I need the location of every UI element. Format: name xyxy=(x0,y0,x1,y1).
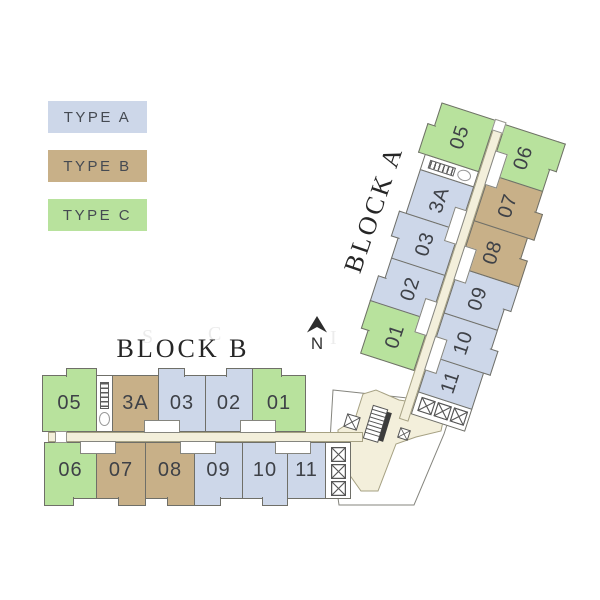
unit-label: 08 xyxy=(479,238,508,268)
door-icon xyxy=(99,412,110,426)
legend-swatch-type-a: TYPE A xyxy=(48,101,147,133)
legend-label-type-a: TYPE A xyxy=(64,109,132,126)
elevator-icon xyxy=(331,447,346,462)
north-indicator: N xyxy=(303,316,331,354)
unit-step xyxy=(418,123,436,155)
unit-label: 02 xyxy=(217,392,241,415)
unit-step xyxy=(548,141,566,172)
unit-step xyxy=(66,368,97,377)
legend-label-type-b: TYPE B xyxy=(63,158,131,175)
unit-step xyxy=(118,497,146,506)
unit-step xyxy=(226,368,253,377)
stair-core xyxy=(96,375,113,432)
unit-label: 11 xyxy=(295,459,318,482)
unit-label: 03 xyxy=(411,229,440,259)
block-a-plan: 0102033A05111009080706 xyxy=(345,97,562,440)
unit-step xyxy=(511,258,528,287)
unit-label: 07 xyxy=(109,459,133,482)
unit-step xyxy=(262,497,288,506)
unit-label: 10 xyxy=(449,328,478,358)
stairs-icon xyxy=(100,382,109,409)
block-b-plan: 053A030201060708091011 xyxy=(43,375,363,499)
unit-label: 10 xyxy=(253,459,277,482)
unit-step xyxy=(252,368,282,377)
unit-label: 06 xyxy=(509,143,538,173)
entry-notch xyxy=(144,420,180,433)
unit-label: 05 xyxy=(446,122,475,152)
unit-label: 11 xyxy=(437,368,466,397)
entry-notch xyxy=(180,441,216,454)
elevator-bank xyxy=(325,442,351,499)
unit-step xyxy=(526,212,543,241)
north-label: N xyxy=(303,334,331,354)
unit-step xyxy=(482,349,498,376)
unit-label: 02 xyxy=(396,274,425,304)
unit-label: 03 xyxy=(170,392,194,415)
unit-label: 01 xyxy=(267,392,291,415)
unit-step xyxy=(391,211,408,239)
floorplan-canvas: MICS 053A030201060708091011 0102033A0511… xyxy=(0,0,600,600)
elevator-icon xyxy=(331,481,346,496)
legend-label-type-c: TYPE C xyxy=(63,207,132,224)
entry-notch xyxy=(240,420,276,433)
unit-step xyxy=(167,497,195,506)
legend-swatch-type-c: TYPE C xyxy=(48,199,147,231)
watermark-letter: I xyxy=(330,327,337,350)
unit-label: 3A xyxy=(122,392,148,415)
unit-label: 06 xyxy=(58,459,82,482)
unit-label: 09 xyxy=(464,284,493,314)
unit-step xyxy=(44,497,74,506)
north-arrow-icon xyxy=(306,316,328,333)
unit-label: 09 xyxy=(206,459,230,482)
unit-label: 05 xyxy=(57,392,81,415)
unit-step xyxy=(194,497,221,506)
entry-notch xyxy=(80,441,116,454)
unit-label: 07 xyxy=(494,191,523,221)
elevator-icon xyxy=(331,464,346,479)
corridor-cap xyxy=(55,431,67,443)
block-b-title: BLOCK B xyxy=(98,334,268,364)
unit-step xyxy=(370,276,387,304)
unit-step xyxy=(158,368,185,377)
unit-label: 3A xyxy=(425,184,455,216)
unit-step xyxy=(503,284,520,313)
unit-step xyxy=(361,300,379,331)
legend-swatch-type-b: TYPE B xyxy=(48,150,147,182)
unit-block-b-05[interactable]: 05 xyxy=(42,375,97,432)
entry-notch xyxy=(275,441,311,454)
unit-label: 08 xyxy=(158,459,182,482)
elevator-icon xyxy=(449,408,468,427)
legend: TYPE A TYPE B TYPE C xyxy=(48,101,147,248)
unit-label: 01 xyxy=(381,322,410,352)
